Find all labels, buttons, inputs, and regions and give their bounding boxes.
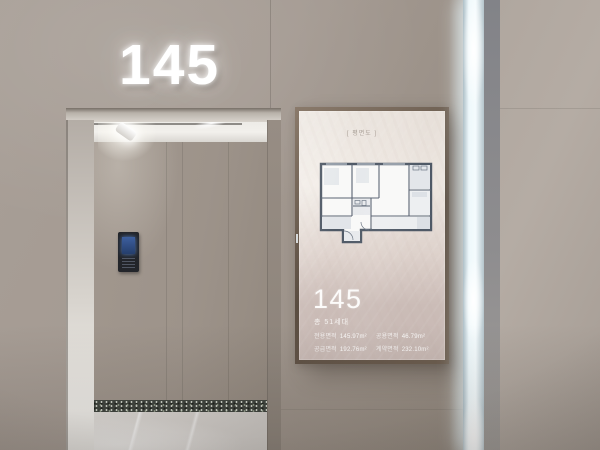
digital-signage-display: [ 평면도 ] (295, 107, 449, 364)
terrazzo-baseboard (94, 400, 267, 412)
signage-screen: [ 평면도 ] (299, 111, 445, 360)
doorway-left-reveal (66, 120, 94, 450)
interior-panel-seam (166, 142, 167, 400)
doorway-opening (66, 108, 281, 450)
wall-panel-seam (500, 108, 600, 109)
floor-number-sign: 145 (119, 37, 220, 94)
led-glow-spill (449, 0, 463, 450)
elevator-lobby-interior (94, 120, 267, 450)
marble-floor (94, 412, 267, 450)
right-wall (500, 0, 600, 450)
interior-panel-seam (182, 142, 183, 400)
frame-latch (296, 234, 298, 243)
intercom-panel (118, 232, 139, 272)
wall-panel-seam (270, 0, 271, 108)
screen-reflection (299, 111, 445, 360)
elevator-vestibule-photo: 145 [ 평면도 ] (0, 0, 600, 450)
track-spotlight (106, 120, 146, 150)
doorway-lintel (66, 108, 281, 122)
intercom-screen (122, 237, 135, 254)
doorway-right-reveal (267, 120, 281, 450)
wall-panel-seam (281, 409, 463, 410)
right-wall-edge (484, 0, 500, 450)
led-light-strip (463, 0, 484, 450)
interior-panel-seam (228, 142, 229, 400)
intercom-keypad (122, 258, 135, 268)
